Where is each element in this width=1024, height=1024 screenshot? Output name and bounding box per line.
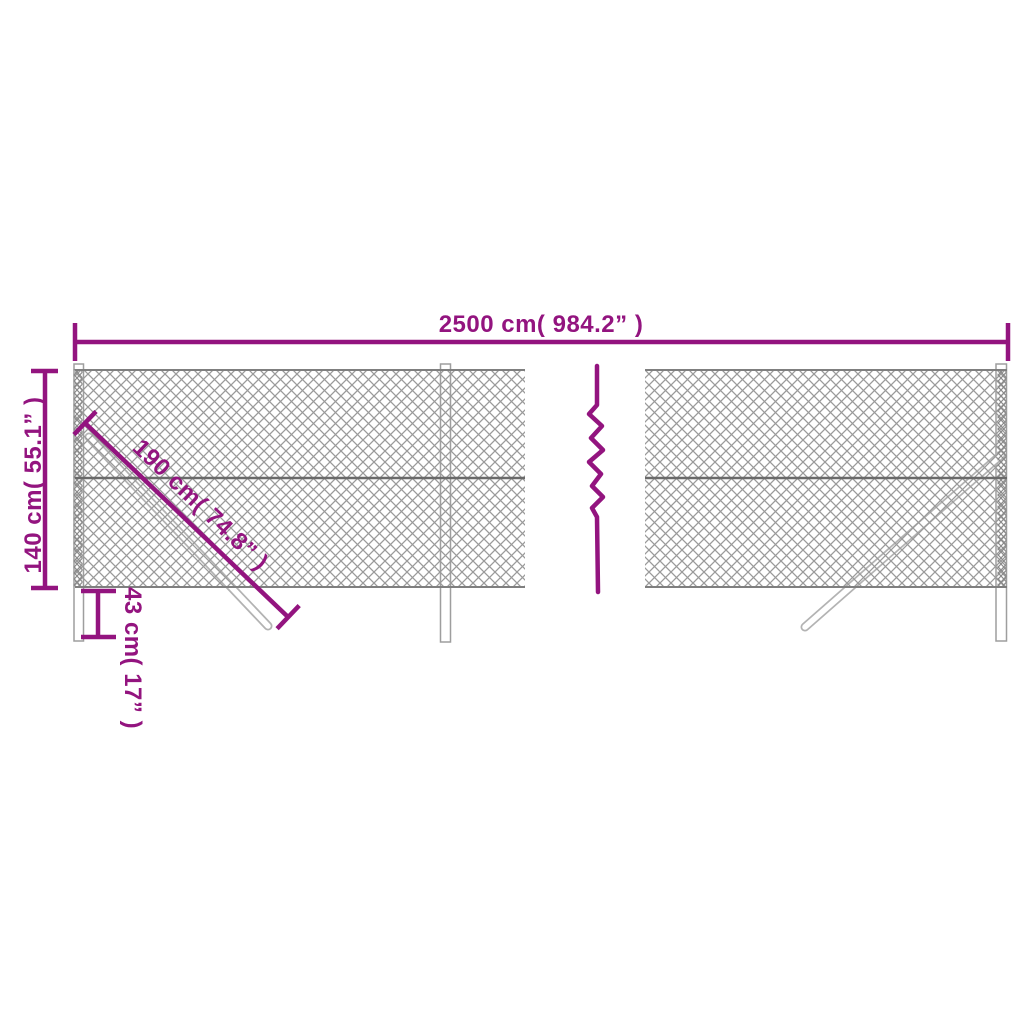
diagram-canvas: 2500 cm( 984.2” ) 140 cm( 55.1” ) 190 cm…	[0, 0, 1024, 1024]
fence-mesh-right-section	[645, 369, 1007, 588]
fence-dimension-diagram: 2500 cm( 984.2” ) 140 cm( 55.1” ) 190 cm…	[0, 0, 1024, 1024]
depth-dim-label: 43 cm( 17” )	[119, 587, 146, 729]
width-dim-label: 2500 cm( 984.2” )	[439, 311, 644, 338]
height-dim-label: 140 cm( 55.1” )	[20, 397, 47, 574]
